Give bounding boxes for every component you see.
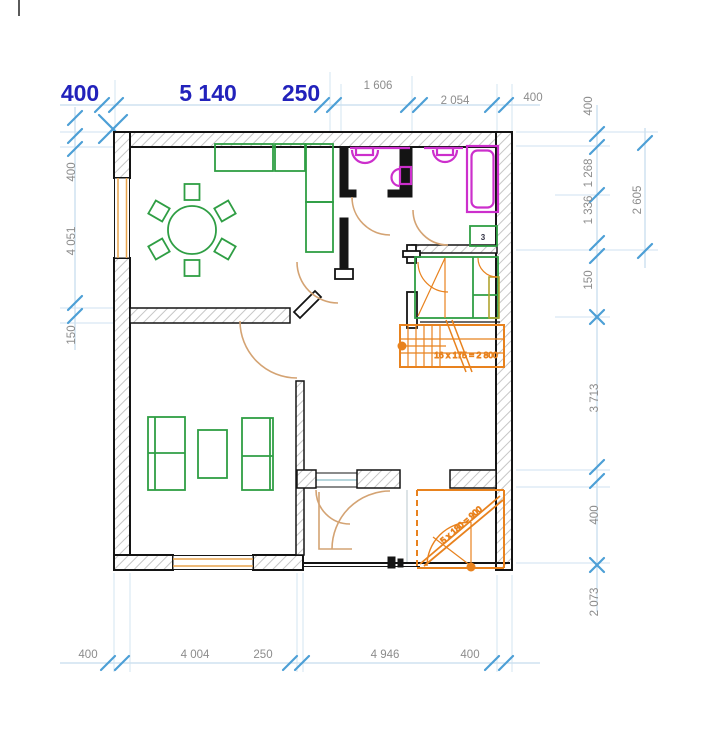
dim-top-primary-2: 5 140	[179, 80, 237, 106]
door-leaf	[294, 291, 321, 318]
kitchen-counter	[306, 144, 333, 202]
dim-bottom-5: 400	[460, 649, 479, 661]
dimension-ticks	[68, 98, 652, 670]
chair	[148, 201, 169, 222]
dim-bottom-4: 4 946	[371, 649, 400, 661]
dim-right-inner-7: 2 073	[589, 588, 601, 617]
dim-top-secondary-1: 1 606	[364, 80, 393, 92]
dim-left-2: 4 051	[66, 227, 78, 256]
chair	[214, 239, 235, 260]
coffee-table	[198, 430, 227, 478]
kitchen-door-arc	[297, 262, 338, 303]
dimension-labels: 400 5 140 250 1 606 2 054 400 400 4 051 …	[61, 80, 644, 661]
stair-start-node	[398, 342, 407, 351]
dim-top-secondary-3: 400	[523, 92, 542, 104]
dim-right-inner-3: 1 336	[583, 196, 595, 225]
kitchen-counter	[215, 144, 273, 171]
dining-table	[168, 206, 216, 254]
living-room-furniture	[148, 417, 273, 490]
bathroom-fixtures	[350, 146, 498, 212]
dim-bottom-2: 4 004	[181, 649, 210, 661]
dim-top-secondary-2: 2 054	[441, 95, 470, 107]
dim-right-inner-4: 150	[583, 270, 595, 289]
windows	[115, 178, 358, 570]
living-door-arc	[240, 321, 297, 378]
dim-right-outer-1: 2 605	[632, 186, 644, 215]
kitchen-counter	[306, 202, 333, 252]
kitchen-dining-furniture	[148, 144, 333, 276]
bath2-door-arc	[413, 210, 448, 245]
floor-plan-page: 3 16 x 175 = 2 800 5 x 180 = 900 400 5	[0, 0, 711, 750]
stair-start-node	[467, 563, 476, 572]
dim-bottom-1: 400	[78, 649, 97, 661]
chair	[148, 239, 169, 260]
chair	[214, 201, 235, 222]
dim-bottom-3: 250	[253, 649, 272, 661]
dim-right-inner-2: 1 268	[583, 159, 595, 188]
kitchen-counter	[275, 144, 305, 171]
under-stair-closet: 3	[415, 226, 499, 318]
dim-left-1: 400	[66, 162, 78, 181]
floor-plan-drawing: 3 16 x 175 = 2 800 5 x 180 = 900 400 5	[0, 0, 711, 750]
dim-top-primary-3: 250	[282, 80, 320, 106]
room-marker-label: 3	[481, 233, 486, 242]
dim-right-inner-5: 3 713	[589, 384, 601, 413]
dim-right-inner-1: 400	[583, 96, 595, 115]
stair-entry-annotation: 5 x 180 = 900	[438, 504, 484, 546]
entrance-door-arc	[332, 491, 390, 549]
dim-top-primary-1: 400	[61, 80, 99, 106]
bath1-door-arc	[352, 197, 390, 235]
stair-main-annotation: 16 x 175 = 2 800	[434, 350, 498, 360]
chair	[185, 184, 200, 200]
dim-right-inner-6: 400	[589, 505, 601, 524]
sofa	[242, 418, 273, 490]
vestibule-door-arc	[316, 490, 350, 524]
dim-left-3: 150	[66, 325, 78, 344]
entry-staircase: 5 x 180 = 900	[407, 490, 504, 572]
chair	[185, 260, 200, 276]
